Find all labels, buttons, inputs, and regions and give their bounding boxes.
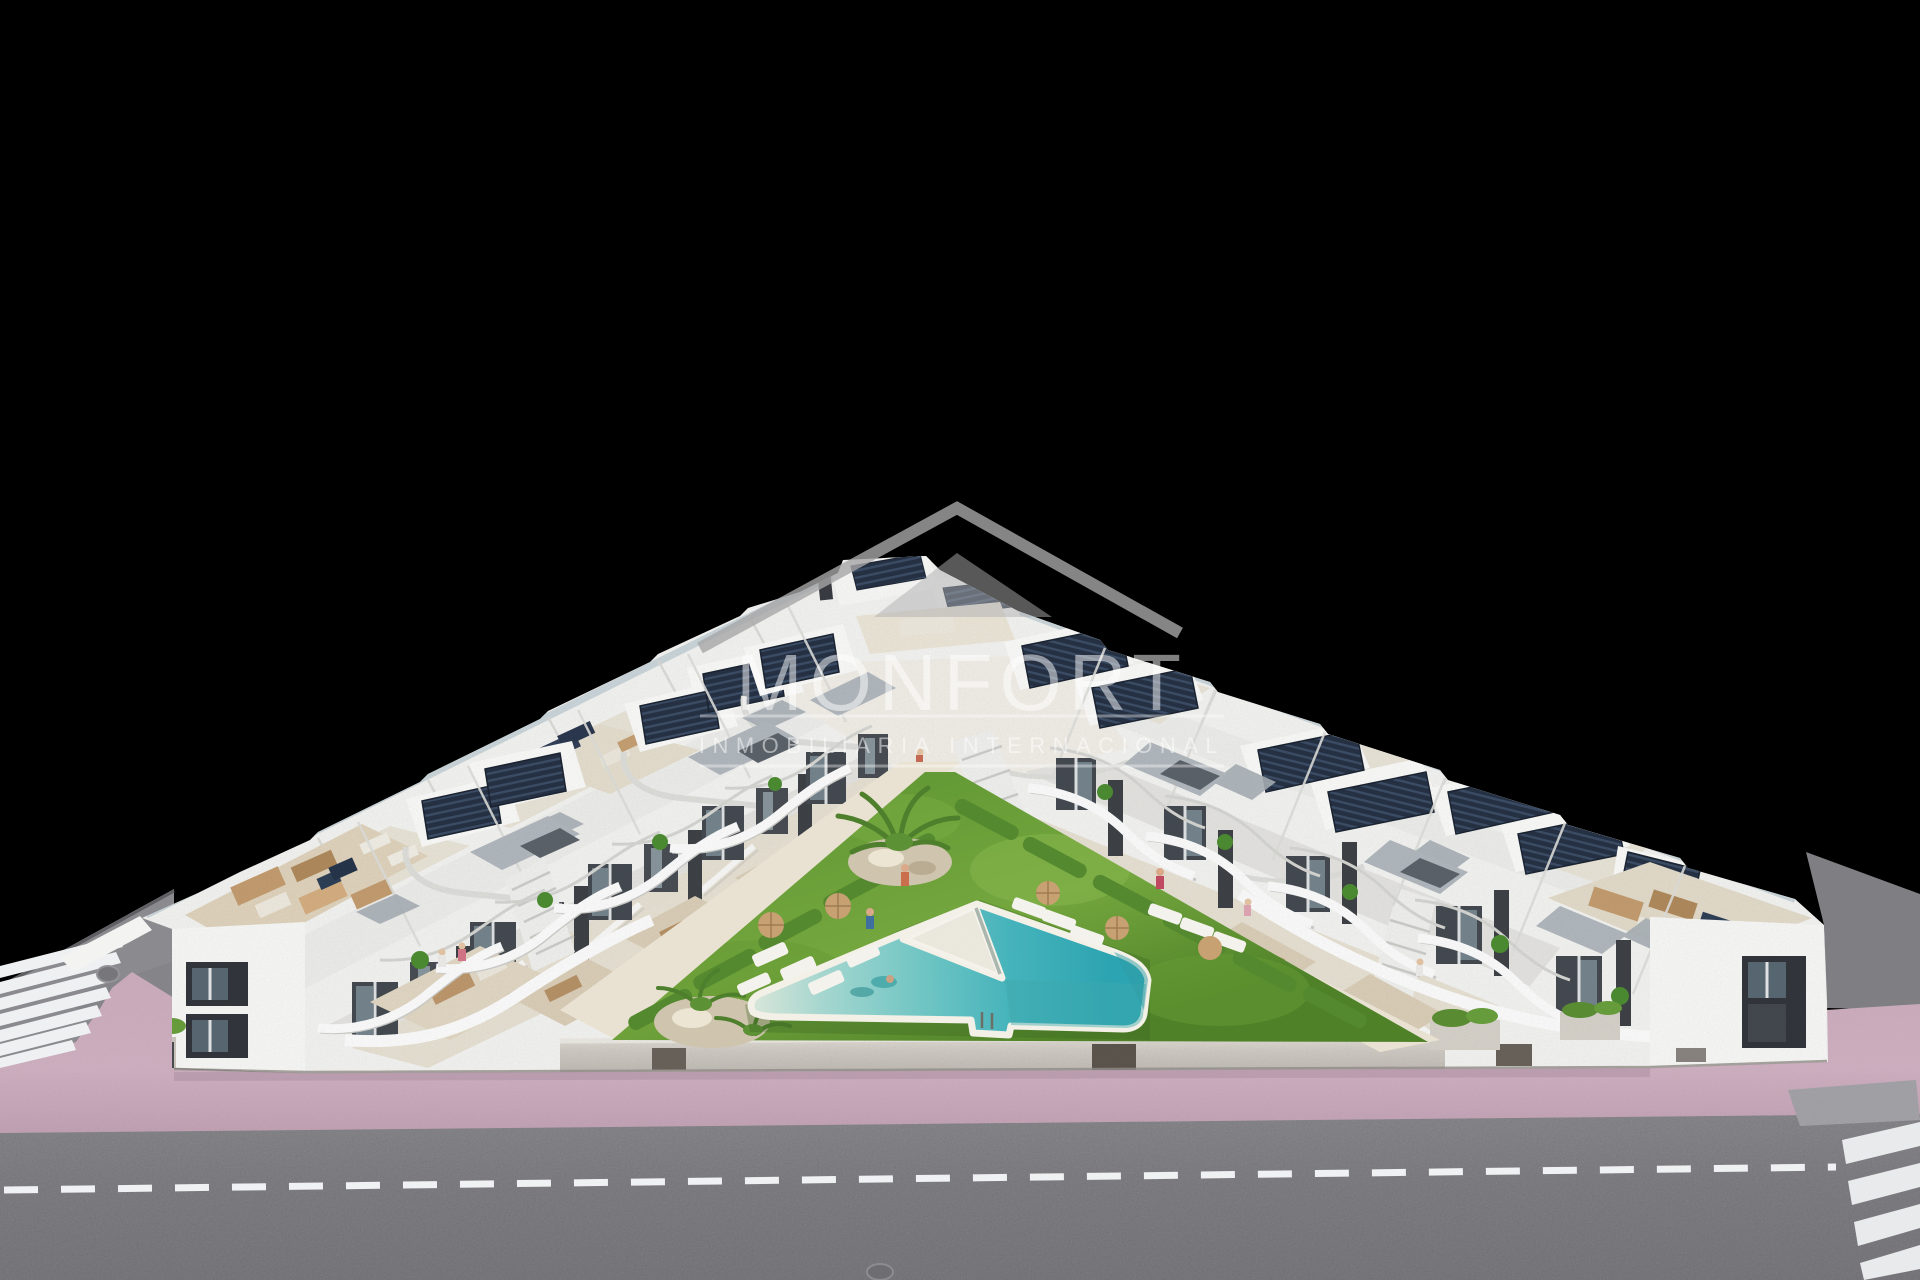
svg-text:MONFORT: MONFORT [736,638,1188,727]
svg-text:INMOBILIARIA INTERNACIONAL: INMOBILIARIA INTERNACIONAL [699,733,1225,758]
